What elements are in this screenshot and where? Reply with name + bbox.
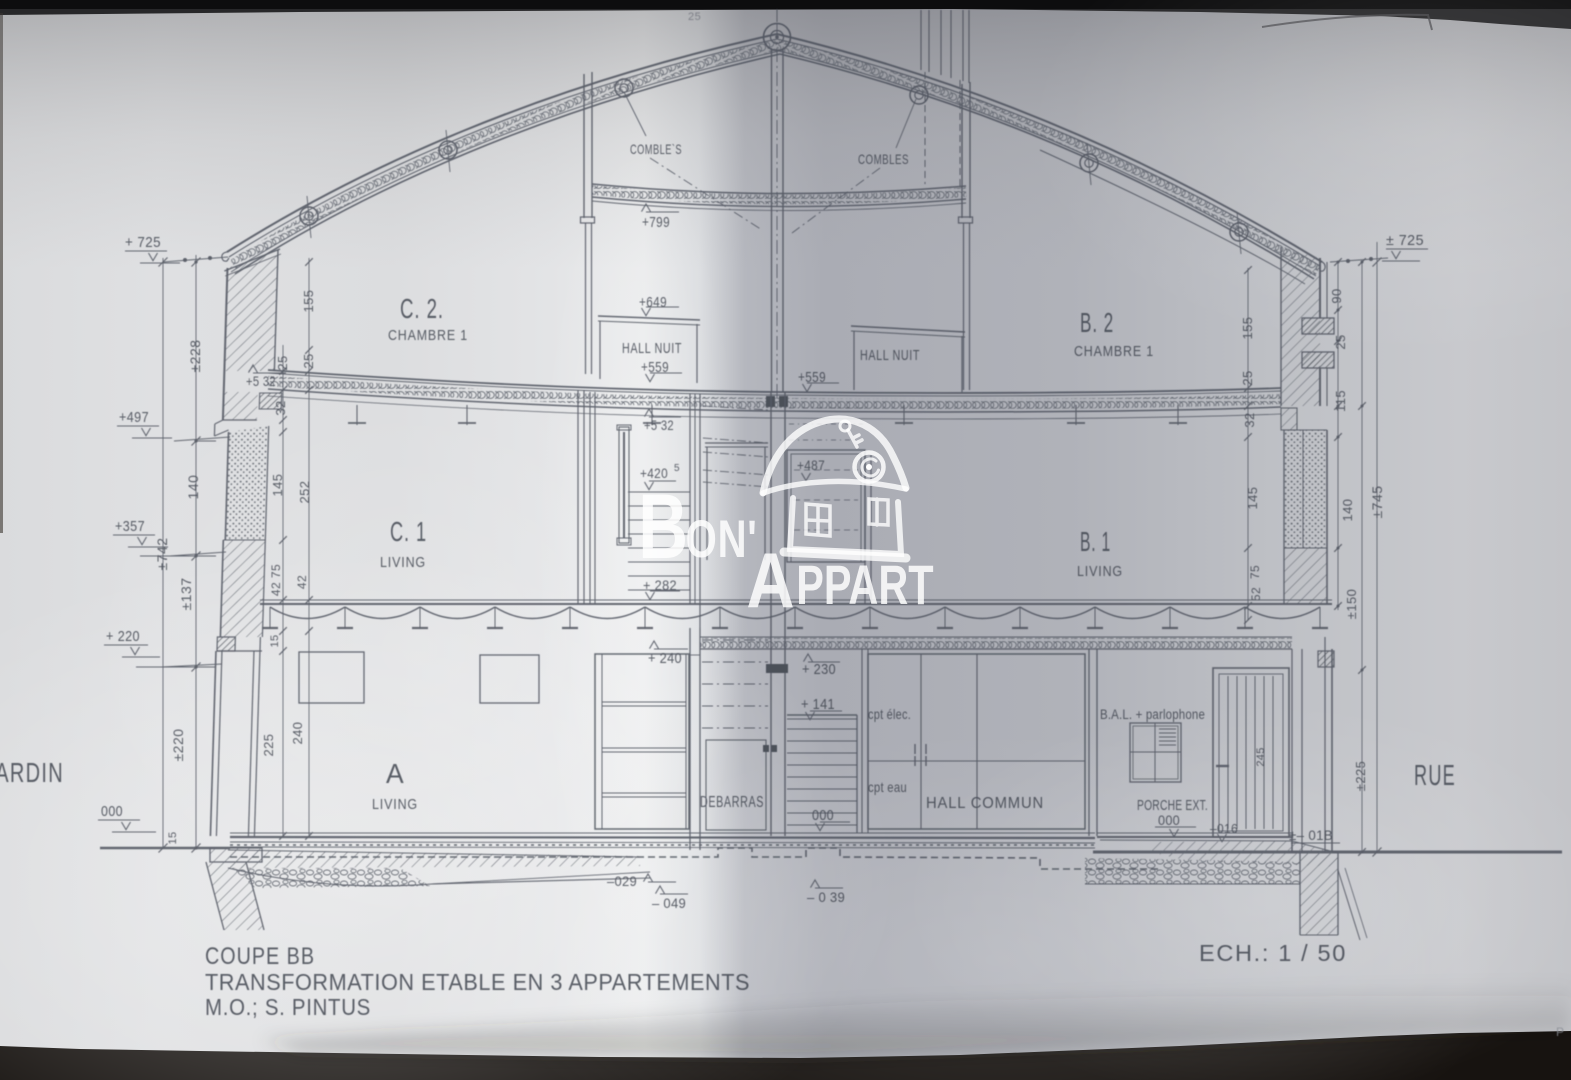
svg-text:25: 25 [301, 353, 316, 368]
svg-text:C. 1: C. 1 [390, 516, 427, 547]
svg-text:RUE: RUE [1414, 760, 1456, 792]
svg-text:115: 115 [1333, 390, 1348, 412]
svg-text:B. 2: B. 2 [1080, 307, 1114, 338]
svg-text:HALL NUIT: HALL NUIT [860, 348, 920, 364]
svg-text:– 0 39: – 0 39 [807, 889, 845, 905]
svg-text:000: 000 [812, 807, 834, 824]
svg-text:COMBLE`S: COMBLE`S [630, 141, 682, 157]
svg-text:140: 140 [1340, 499, 1355, 522]
svg-text:155: 155 [301, 290, 316, 313]
svg-text:145: 145 [1245, 487, 1260, 510]
svg-text:240: 240 [290, 722, 305, 745]
svg-text:42: 42 [269, 582, 283, 596]
svg-text:TRANSFORMATION ETABLE EN 3 APP: TRANSFORMATION ETABLE EN 3 APPARTEMENTS [205, 969, 750, 995]
svg-text:M.O.; S. PINTUS: M.O.; S. PINTUS [205, 994, 371, 1020]
svg-text:DEBARRAS: DEBARRAS [700, 794, 764, 811]
svg-text:B: B [638, 475, 688, 578]
svg-text:+497: +497 [119, 409, 149, 426]
svg-text:COUPE BB: COUPE BB [205, 943, 315, 970]
svg-text:000: 000 [101, 803, 123, 820]
svg-text:ECH.: 1 / 50: ECH.: 1 / 50 [1199, 940, 1347, 966]
svg-text:+5 32: +5 32 [644, 417, 674, 433]
svg-text:P: P [1556, 1025, 1564, 1039]
svg-text:245: 245 [1255, 747, 1267, 766]
svg-text:A: A [386, 758, 405, 789]
svg-text:HALL NUIT: HALL NUIT [622, 341, 682, 357]
svg-text:+ 240: + 240 [648, 650, 682, 667]
svg-text:32: 32 [273, 400, 288, 415]
svg-text:±742: ±742 [154, 537, 170, 570]
svg-text:32: 32 [1242, 412, 1257, 427]
svg-text:15: 15 [269, 634, 281, 647]
svg-text:±150: ±150 [1344, 589, 1359, 619]
svg-text:42: 42 [295, 575, 309, 589]
svg-text:+5 32: +5 32 [246, 374, 276, 389]
svg-text:±137: ±137 [178, 577, 194, 610]
svg-text:15: 15 [167, 831, 179, 844]
svg-text:225: 225 [261, 734, 276, 757]
svg-text:±228: ±228 [187, 339, 203, 372]
svg-text:HALL COMMUN: HALL COMMUN [926, 795, 1044, 812]
svg-text:+ 230: + 230 [802, 661, 836, 678]
svg-text:B.A.L. + parlophone: B.A.L. + parlophone [1100, 707, 1205, 722]
svg-text:25: 25 [275, 355, 290, 370]
svg-text:CHAMBRE 1: CHAMBRE 1 [1074, 343, 1154, 360]
svg-text:52: 52 [1249, 587, 1263, 601]
svg-text:+649: +649 [639, 294, 667, 311]
svg-text:cpt élec.: cpt élec. [868, 706, 911, 722]
svg-text:–029: –029 [607, 873, 637, 889]
svg-text:±220: ±220 [170, 728, 186, 761]
svg-text:252: 252 [297, 481, 312, 504]
svg-text:COMBLES: COMBLES [858, 151, 909, 167]
svg-text:75: 75 [1248, 565, 1262, 579]
svg-text:+ 220: + 220 [106, 628, 140, 645]
svg-text:+799: +799 [642, 214, 670, 231]
svg-text:PPART: PPART [796, 554, 933, 617]
svg-text:C. 2.: C. 2. [400, 293, 444, 324]
svg-text:± 725: ± 725 [1386, 232, 1424, 249]
svg-text:90: 90 [1329, 288, 1344, 303]
svg-text:LIVING: LIVING [372, 796, 418, 813]
svg-text:–016: –016 [1210, 821, 1238, 836]
svg-text:+ 725: + 725 [125, 234, 161, 251]
svg-text:+357: +357 [115, 518, 145, 535]
svg-text:25: 25 [688, 11, 701, 23]
svg-text:+487: +487 [797, 457, 825, 473]
svg-text:±225: ±225 [1353, 761, 1368, 791]
svg-text:25: 25 [1240, 370, 1255, 385]
svg-text:±745: ±745 [1369, 485, 1385, 518]
svg-text:– 049: – 049 [652, 895, 686, 911]
svg-text:+ 141: + 141 [801, 696, 835, 713]
svg-text:75: 75 [269, 564, 283, 578]
svg-text:JARDIN: JARDIN [0, 757, 64, 788]
svg-text:000: 000 [1158, 812, 1180, 828]
svg-text:±– 01B: ±– 01B [1289, 828, 1333, 843]
svg-text:145: 145 [270, 474, 285, 497]
svg-text:5: 5 [674, 463, 680, 474]
svg-text:cpt eau: cpt eau [868, 779, 907, 795]
svg-text:CHAMBRE 1: CHAMBRE 1 [388, 327, 468, 344]
svg-text:LIVING: LIVING [1077, 563, 1123, 580]
svg-text:155: 155 [1240, 317, 1255, 340]
svg-text:140: 140 [185, 475, 201, 500]
svg-text:25: 25 [1333, 334, 1348, 349]
svg-text:LIVING: LIVING [380, 554, 426, 571]
svg-text:B. 1: B. 1 [1080, 526, 1111, 557]
